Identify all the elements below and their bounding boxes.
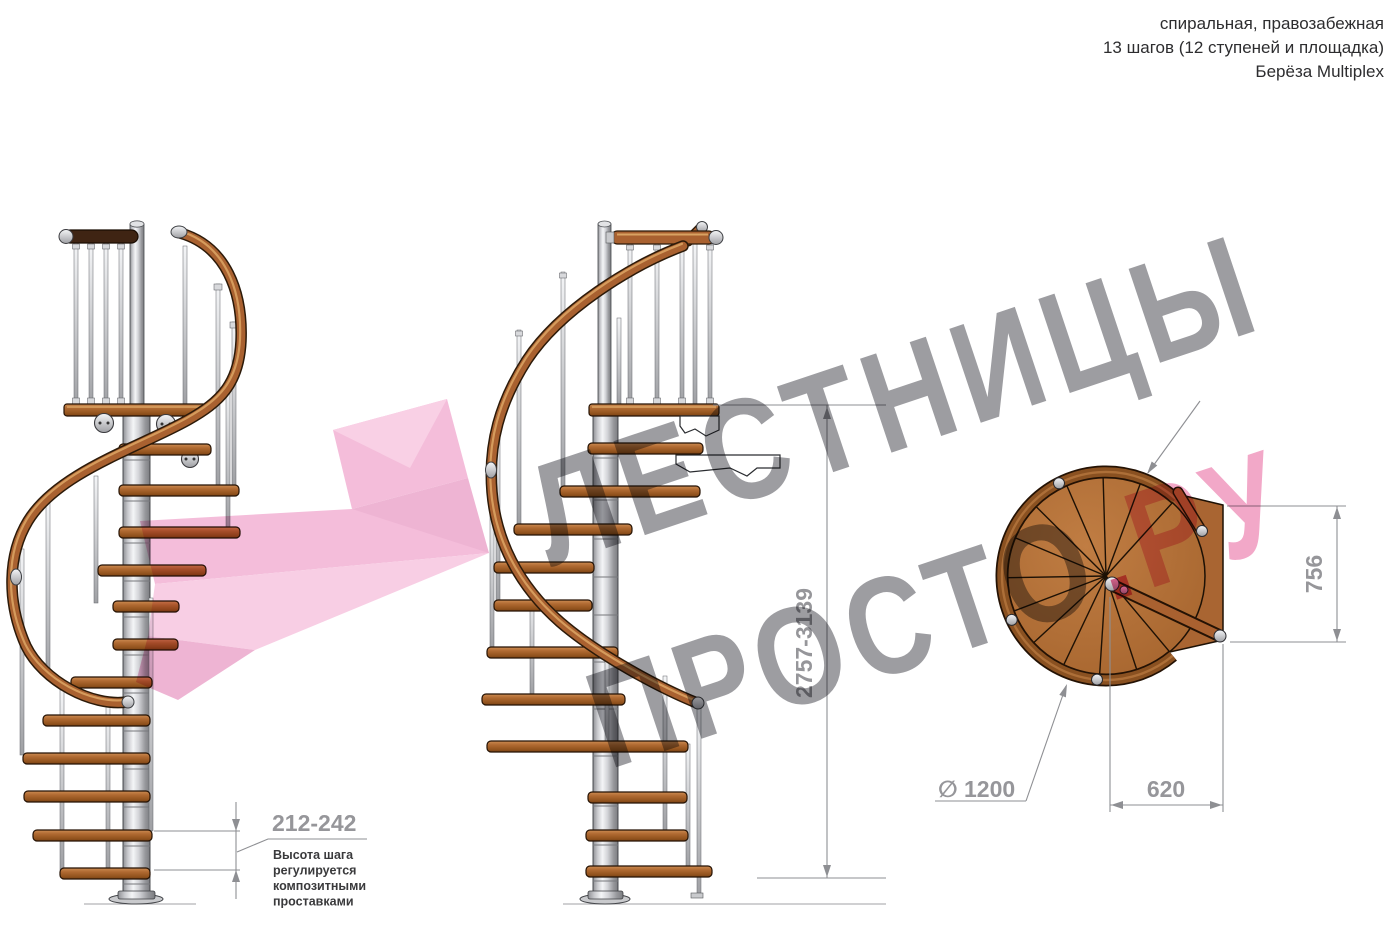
stair-material: Берёза Multiplex — [1103, 60, 1384, 84]
highlight-arrow — [0, 0, 1400, 937]
title-block: спиральная, правозабежная 13 шагов (12 с… — [1103, 12, 1384, 84]
stair-steps: 13 шагов (12 ступеней и площадка) — [1103, 36, 1384, 60]
drawing-page: 2757-3139 212-242 Высота шага регулирует… — [0, 0, 1400, 937]
stair-type: спиральная, правозабежная — [1103, 12, 1384, 36]
